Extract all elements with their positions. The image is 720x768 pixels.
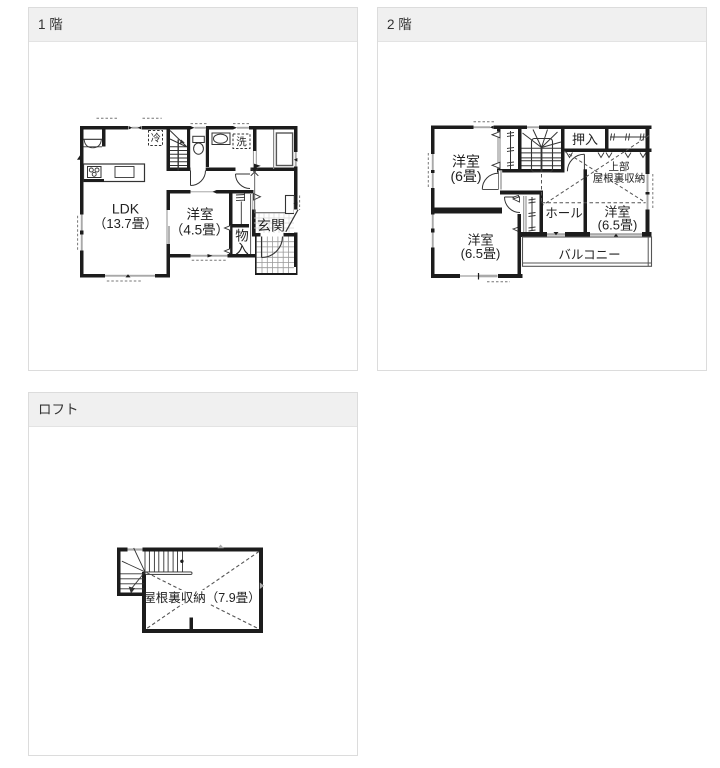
svg-text:洋室: 洋室	[187, 206, 214, 222]
svg-text:(6畳): (6畳)	[450, 168, 481, 184]
svg-text:(6.5畳): (6.5畳)	[598, 218, 638, 233]
svg-text:（13.7畳）: （13.7畳）	[93, 216, 157, 231]
svg-text:入: 入	[235, 242, 249, 257]
svg-text:洗: 洗	[236, 136, 247, 148]
svg-text:押入: 押入	[572, 132, 598, 147]
svg-text:屋根裏収納: 屋根裏収納	[593, 172, 646, 185]
svg-text:玄関: 玄関	[257, 218, 285, 234]
svg-text:上部: 上部	[609, 160, 630, 173]
svg-text:バルコニー: バルコニー	[558, 248, 620, 262]
svg-text:冷: 冷	[151, 132, 161, 145]
svg-text:（4.5畳）: （4.5畳）	[170, 223, 229, 238]
svg-text:ホール: ホール	[545, 207, 583, 221]
svg-text:LDK: LDK	[112, 201, 140, 217]
svg-text:屋根裏収納（7.9畳）: 屋根裏収納（7.9畳）	[143, 590, 260, 605]
svg-text:(6.5畳): (6.5畳)	[461, 246, 501, 261]
